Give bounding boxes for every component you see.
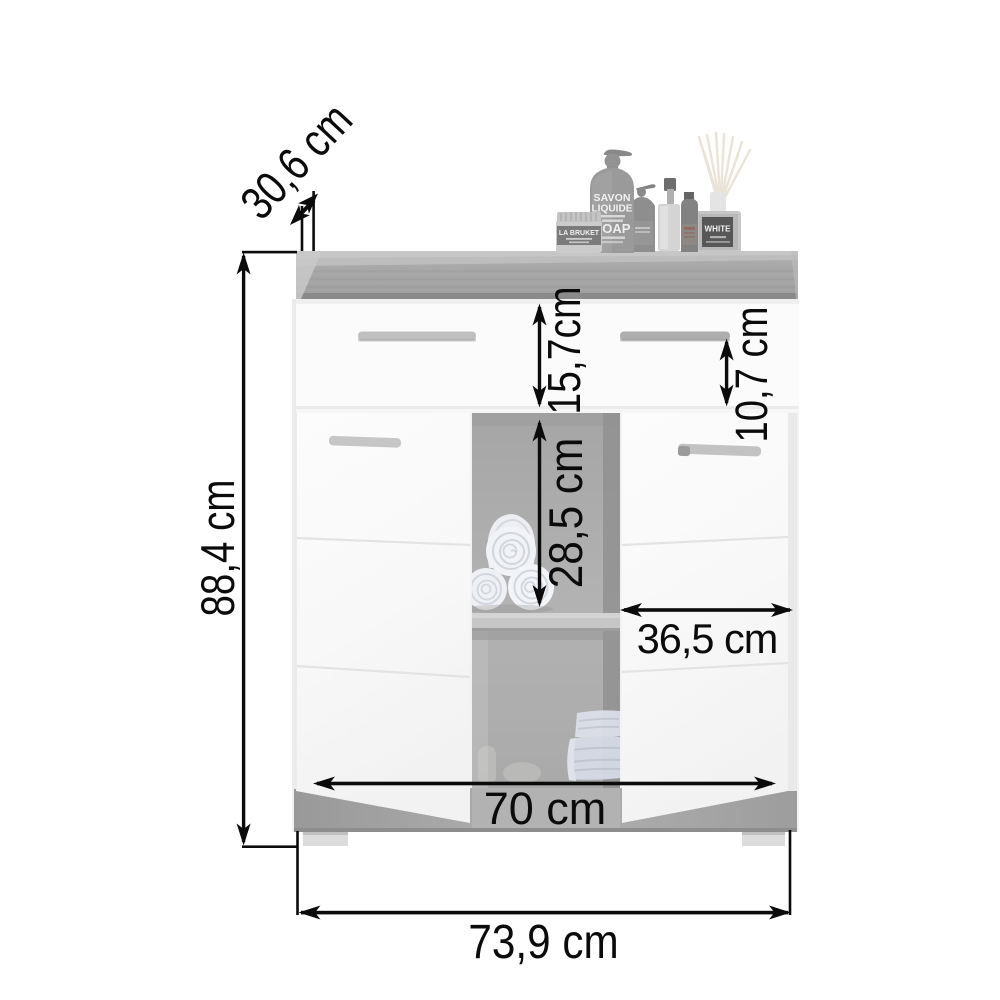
svg-text:15,7cm: 15,7cm — [539, 286, 591, 414]
svg-text:73,9 cm: 73,9 cm — [468, 914, 618, 968]
svg-text:28,5 cm: 28,5 cm — [541, 438, 593, 588]
svg-text:WHITE: WHITE — [705, 225, 732, 234]
svg-text:10,7 cm: 10,7 cm — [726, 306, 777, 442]
svg-text:88,4 cm: 88,4 cm — [192, 479, 244, 616]
svg-text:36,5 cm: 36,5 cm — [637, 615, 778, 662]
svg-text:70 cm: 70 cm — [484, 783, 607, 834]
svg-text:LA BRUKET: LA BRUKET — [559, 230, 600, 237]
